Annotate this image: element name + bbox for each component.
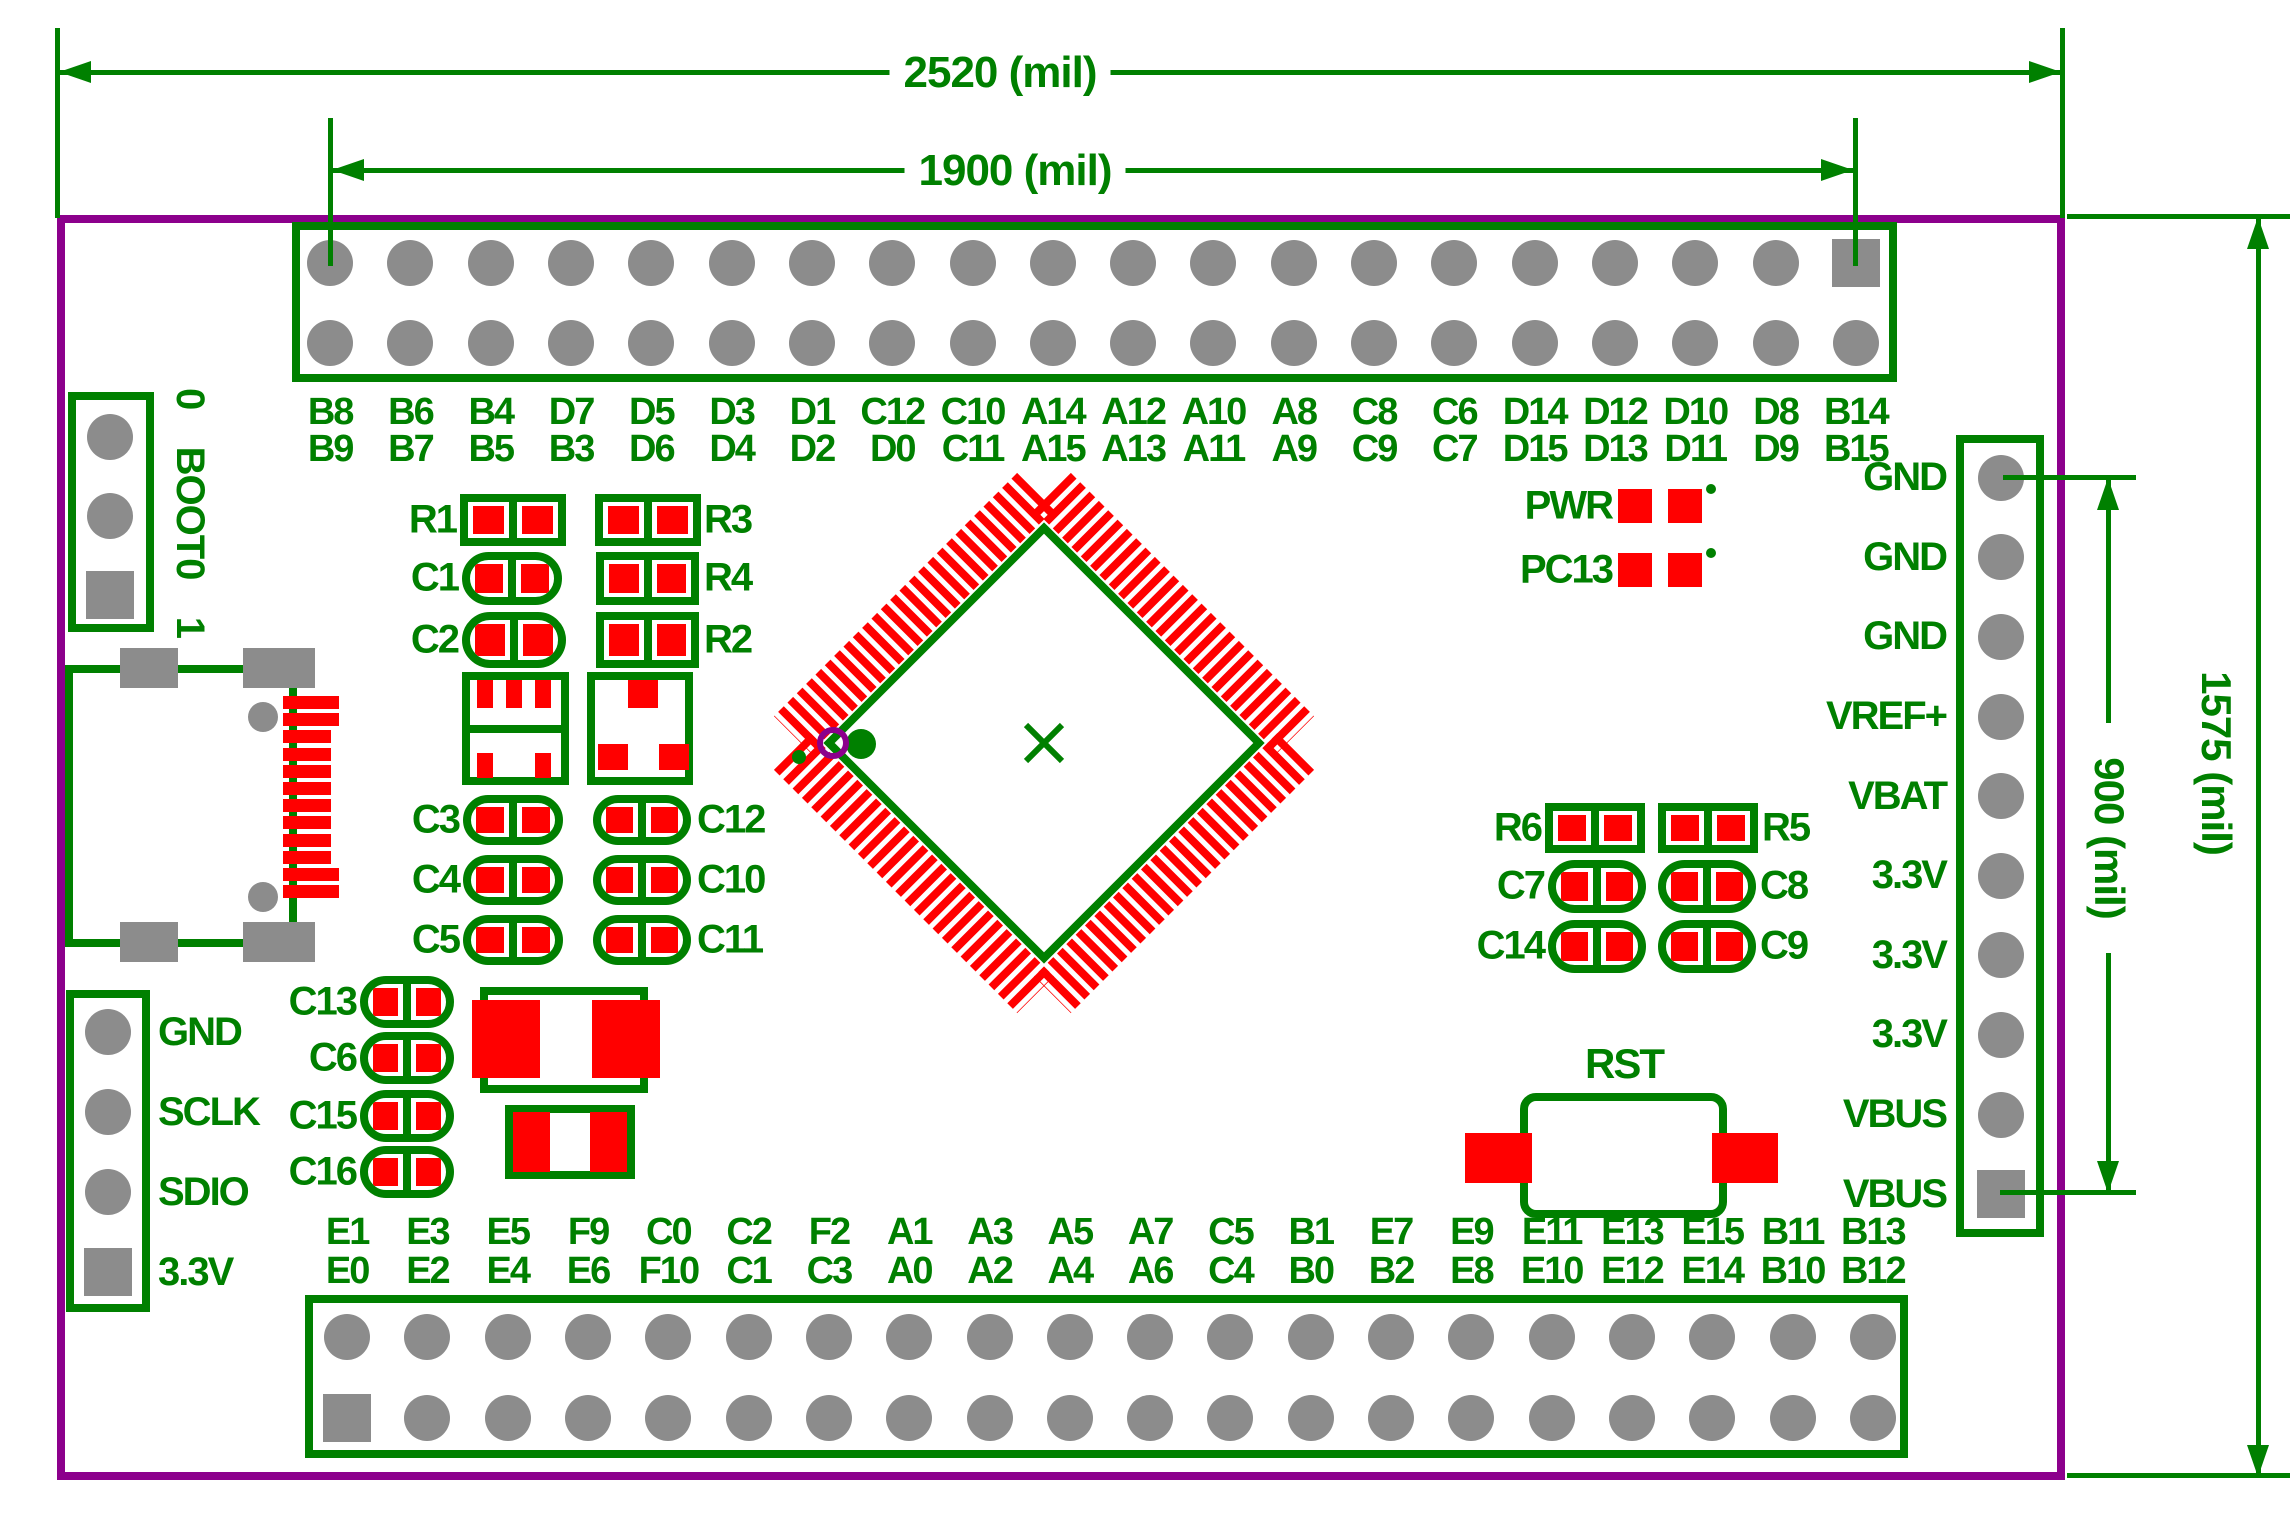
dim-text-1900: 1900 (mil)	[905, 146, 1126, 196]
pcb-dimension-drawing: { "dimensions": { "top_outer": "2520 (mi…	[0, 0, 2292, 1524]
dim-arrow-right	[2029, 61, 2061, 83]
dim-arrow-up	[2247, 217, 2269, 249]
mcu-qfp-footprint	[0, 0, 2292, 1524]
dim-ext-line	[2060, 28, 2065, 218]
dim-ext-line	[1853, 118, 1858, 266]
dim-arrow-right	[1821, 159, 1853, 181]
dim-text-1575-value: 1575 (mil)	[2192, 671, 2240, 855]
dim-arrow-left	[59, 61, 91, 83]
dim-arrow-up	[2097, 478, 2119, 510]
dim-ext-line	[328, 118, 333, 266]
dim-arrow-left	[332, 159, 364, 181]
dim-line-1575	[2256, 216, 2261, 1478]
dim-arrow-down	[2247, 1445, 2269, 1477]
pin1-mark	[846, 729, 876, 759]
dim-arrow-down	[2097, 1161, 2119, 1193]
silkscreen-dot	[792, 750, 806, 764]
dim-ext-line	[55, 28, 60, 218]
dim-text-900-value: 900 (mil)	[2085, 757, 2133, 918]
dim-text-2520: 2520 (mil)	[890, 48, 1111, 98]
